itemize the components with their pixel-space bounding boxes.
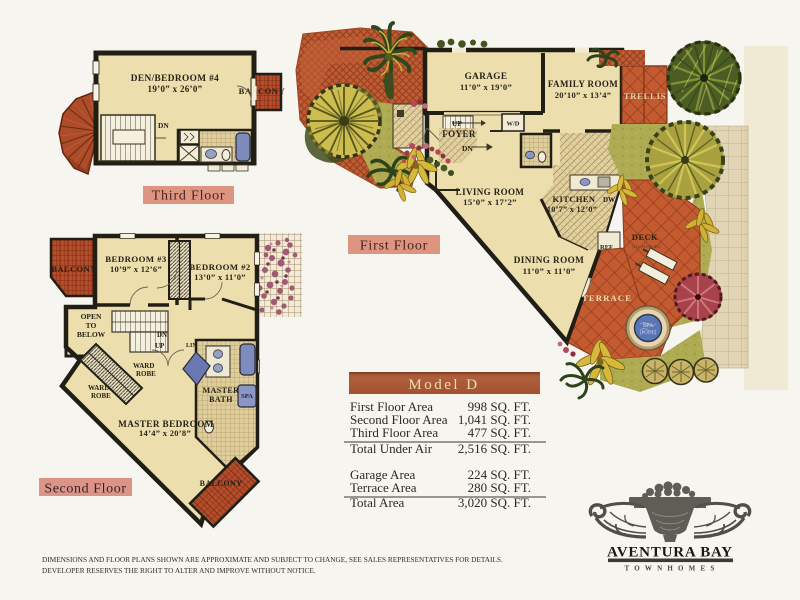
- svg-text:Third Floor Area: Third Floor Area: [350, 425, 438, 440]
- svg-text:DIMENSIONS AND FLOOR PLANS SHO: DIMENSIONS AND FLOOR PLANS SHOWN ARE APP…: [42, 555, 503, 564]
- svg-text:477 SQ. FT.: 477 SQ. FT.: [468, 425, 531, 440]
- svg-text:FOYER: FOYER: [442, 129, 476, 139]
- svg-text:Terrace Area: Terrace Area: [350, 480, 417, 495]
- svg-text:Total Under Air: Total Under Air: [350, 441, 433, 456]
- svg-text:DINING ROOM: DINING ROOM: [514, 255, 585, 265]
- svg-text:LIN: LIN: [186, 343, 197, 349]
- svg-text:11’0” x 11’0”: 11’0” x 11’0”: [523, 266, 576, 276]
- svg-text:BALCONY: BALCONY: [200, 479, 243, 488]
- svg-text:BELOW: BELOW: [77, 330, 106, 339]
- svg-text:AVENTURA BAY: AVENTURA BAY: [607, 545, 733, 561]
- svg-text:WARD: WARD: [133, 362, 154, 370]
- svg-text:280 SQ. FT.: 280 SQ. FT.: [468, 480, 531, 495]
- svg-text:TOWNHOMES: TOWNHOMES: [625, 565, 720, 573]
- svg-text:Second Floor: Second Floor: [44, 482, 126, 497]
- svg-text:Model D: Model D: [408, 377, 479, 393]
- svg-text:BATH: BATH: [209, 395, 233, 404]
- svg-text:DW: DW: [603, 196, 615, 204]
- svg-text:BALCONY: BALCONY: [239, 86, 286, 96]
- svg-text:20’10” x 13’4”: 20’10” x 13’4”: [555, 90, 612, 100]
- svg-text:19’0” x 26’0”: 19’0” x 26’0”: [148, 84, 203, 94]
- svg-text:GARAGE: GARAGE: [465, 71, 508, 81]
- svg-text:DN: DN: [158, 121, 169, 130]
- svg-text:SPA: SPA: [241, 393, 253, 400]
- svg-text:TO: TO: [86, 321, 97, 330]
- svg-text:DN: DN: [157, 331, 167, 339]
- svg-text:WARD: WARD: [88, 384, 109, 392]
- svg-text:ROBE: ROBE: [91, 392, 111, 400]
- svg-text:UP: UP: [155, 342, 165, 350]
- svg-text:15’0” x 17’2”: 15’0” x 17’2”: [463, 197, 517, 207]
- svg-text:OPEN: OPEN: [81, 312, 102, 321]
- svg-text:First Floor: First Floor: [360, 239, 428, 254]
- svg-text:13’0” x 11’0”: 13’0” x 11’0”: [194, 272, 246, 282]
- svg-text:TRELLIS: TRELLIS: [624, 91, 666, 101]
- svg-text:(POOL): (POOL): [640, 331, 657, 336]
- svg-text:Third Floor: Third Floor: [152, 189, 226, 204]
- svg-text:DN: DN: [462, 144, 473, 153]
- svg-text:14’4” x 20’8”: 14’4” x 20’8”: [139, 428, 191, 438]
- svg-text:BALCONY: BALCONY: [51, 264, 96, 274]
- svg-text:LIVING ROOM: LIVING ROOM: [456, 187, 525, 197]
- svg-text:2,516 SQ. FT.: 2,516 SQ. FT.: [458, 441, 531, 456]
- svg-text:DEN/BEDROOM #4: DEN/BEDROOM #4: [131, 74, 220, 84]
- svg-text:BEDROOM #3: BEDROOM #3: [105, 254, 167, 264]
- svg-text:MASTER: MASTER: [203, 386, 240, 395]
- svg-text:10’7” x 12’0”: 10’7” x 12’0”: [547, 205, 597, 214]
- svg-text:DECK: DECK: [632, 232, 658, 242]
- svg-text:FAMILY ROOM: FAMILY ROOM: [548, 79, 618, 89]
- svg-text:SPA: SPA: [643, 323, 654, 329]
- svg-text:10’9” x 12’6”: 10’9” x 12’6”: [110, 264, 162, 274]
- svg-text:BEDROOM #2: BEDROOM #2: [189, 262, 251, 272]
- svg-text:Total Area: Total Area: [350, 495, 405, 510]
- svg-text:UP: UP: [452, 119, 462, 128]
- svg-text:11’0” x 19’0”: 11’0” x 19’0”: [460, 82, 512, 92]
- svg-text:TERRACE: TERRACE: [582, 293, 632, 303]
- svg-text:KITCHEN: KITCHEN: [553, 194, 596, 204]
- svg-text:DEVELOPER RESERVES THE RIGHT T: DEVELOPER RESERVES THE RIGHT TO ALTER AN…: [42, 566, 316, 575]
- svg-text:3,020 SQ. FT.: 3,020 SQ. FT.: [458, 495, 531, 510]
- svg-text:(OUTDOOR): (OUTDOOR): [632, 245, 660, 250]
- svg-text:W/D: W/D: [507, 121, 520, 128]
- svg-text:ROBE: ROBE: [136, 370, 156, 378]
